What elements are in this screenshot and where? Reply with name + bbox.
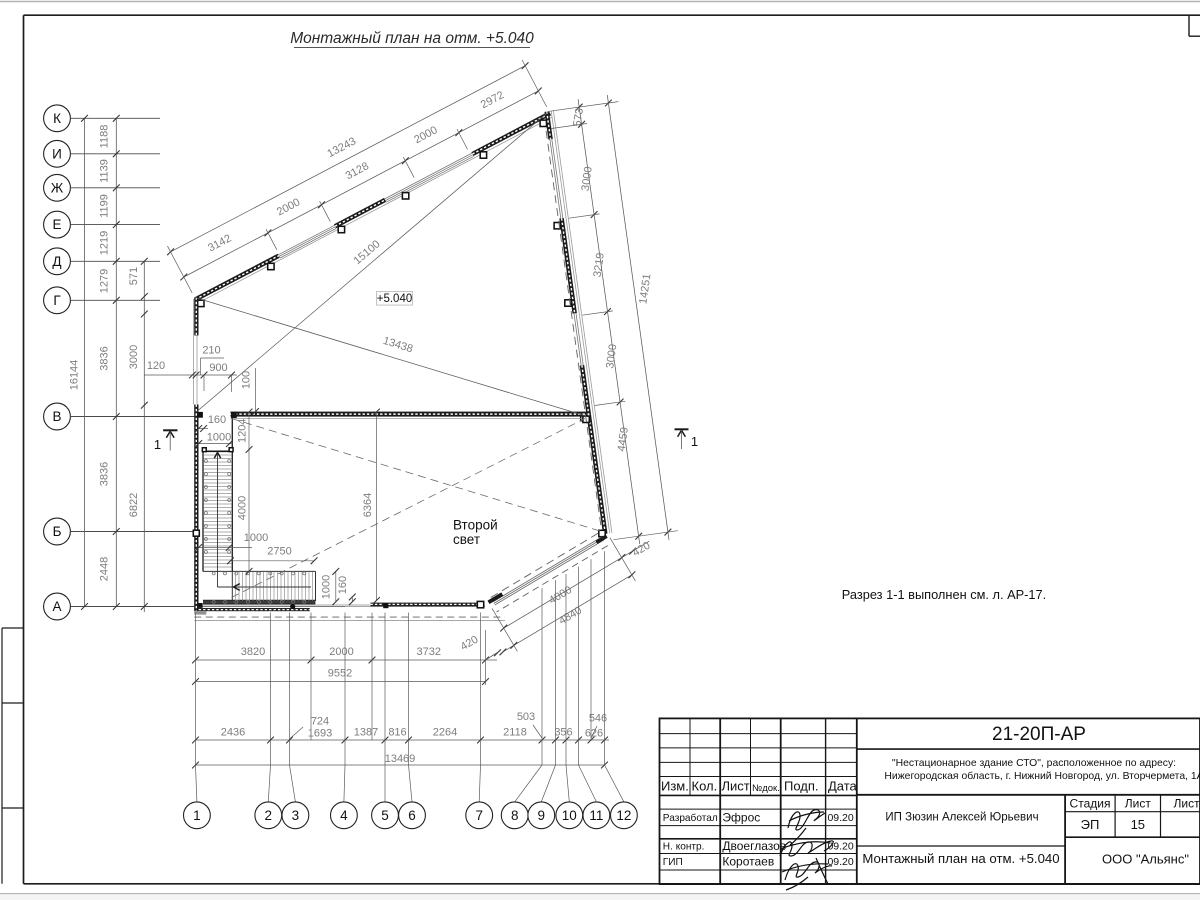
svg-text:1139: 1139 bbox=[99, 159, 111, 183]
svg-text:10: 10 bbox=[562, 808, 577, 823]
svg-text:1693: 1693 bbox=[308, 728, 332, 740]
svg-text:Разрез 1-1 выполнен см. л. АР-: Разрез 1-1 выполнен см. л. АР-17. bbox=[842, 587, 1046, 602]
svg-text:4000: 4000 bbox=[237, 496, 249, 520]
svg-text:2750: 2750 bbox=[267, 546, 291, 558]
svg-text:2436: 2436 bbox=[221, 727, 245, 739]
svg-text:Дата: Дата bbox=[828, 778, 858, 793]
svg-text:2448: 2448 bbox=[99, 557, 111, 581]
svg-text:Второй: Второй bbox=[453, 518, 498, 533]
svg-text:210: 210 bbox=[202, 345, 220, 357]
svg-text:2000: 2000 bbox=[329, 646, 353, 658]
svg-text:Двоеглазов: Двоеглазов bbox=[722, 839, 786, 853]
svg-text:1: 1 bbox=[691, 434, 698, 449]
svg-text:Разработал: Разработал bbox=[663, 812, 718, 824]
svg-text:1: 1 bbox=[154, 437, 161, 452]
svg-text:1188: 1188 bbox=[99, 125, 111, 149]
svg-text:свет: свет bbox=[453, 532, 480, 547]
svg-text:503: 503 bbox=[517, 711, 535, 723]
svg-text:3000: 3000 bbox=[128, 345, 140, 369]
svg-text:09.20: 09.20 bbox=[827, 812, 853, 824]
svg-text:6822: 6822 bbox=[128, 493, 140, 517]
svg-text:1219: 1219 bbox=[99, 231, 111, 255]
svg-text:120: 120 bbox=[147, 360, 165, 372]
svg-text:1204: 1204 bbox=[237, 419, 249, 443]
svg-text:Стадия: Стадия bbox=[1070, 797, 1111, 811]
svg-text:6: 6 bbox=[408, 808, 416, 823]
svg-text:Изм.: Изм. bbox=[661, 778, 689, 793]
svg-text:100: 100 bbox=[241, 371, 253, 389]
svg-text:1279: 1279 bbox=[99, 269, 111, 293]
svg-text:7: 7 bbox=[475, 808, 483, 823]
svg-text:Монтажный план на отм. +5.040: Монтажный план на отм. +5.040 bbox=[290, 30, 534, 47]
svg-text:2264: 2264 bbox=[433, 727, 457, 739]
svg-text:13469: 13469 bbox=[385, 753, 416, 765]
svg-text:"Нестационарное здание СТО", р: "Нестационарное здание СТО", расположенн… bbox=[892, 758, 1176, 769]
svg-text:571: 571 bbox=[128, 267, 140, 285]
svg-text:1000: 1000 bbox=[321, 575, 333, 599]
svg-text:Листов: Листов bbox=[1174, 797, 1200, 811]
svg-text:К: К bbox=[53, 111, 61, 126]
svg-text:16144: 16144 bbox=[69, 360, 81, 391]
svg-text:1: 1 bbox=[193, 808, 201, 823]
svg-text:1000: 1000 bbox=[207, 432, 231, 444]
svg-text:ООО "Альянс": ООО "Альянс" bbox=[1102, 852, 1189, 867]
svg-text:6364: 6364 bbox=[362, 493, 374, 517]
svg-text:3820: 3820 bbox=[241, 646, 265, 658]
svg-text:Нижегородская область, г. Нижн: Нижегородская область, г. Нижний Новгоро… bbox=[884, 770, 1200, 782]
svg-text:3: 3 bbox=[292, 808, 300, 823]
svg-text:ГИП: ГИП bbox=[663, 857, 683, 868]
svg-text:Коротаев: Коротаев bbox=[722, 855, 774, 869]
svg-text:1199: 1199 bbox=[99, 194, 111, 218]
svg-text:626: 626 bbox=[585, 728, 603, 740]
svg-text:+5.040: +5.040 bbox=[377, 293, 413, 305]
svg-text:Е: Е bbox=[52, 217, 61, 232]
svg-text:9552: 9552 bbox=[328, 668, 352, 680]
svg-text:21-20П-АР: 21-20П-АР bbox=[992, 724, 1086, 745]
svg-text:1000: 1000 bbox=[244, 532, 268, 544]
svg-text:160: 160 bbox=[208, 414, 226, 426]
svg-text:Б: Б bbox=[53, 524, 62, 539]
svg-text:900: 900 bbox=[209, 362, 227, 374]
svg-text:356: 356 bbox=[554, 727, 572, 739]
svg-text:09.20: 09.20 bbox=[827, 841, 853, 853]
svg-text:Кол.: Кол. bbox=[692, 778, 718, 793]
svg-text:816: 816 bbox=[388, 727, 406, 739]
svg-text:Эфрос: Эфрос bbox=[722, 810, 760, 824]
svg-text:160: 160 bbox=[337, 576, 349, 594]
svg-text:15: 15 bbox=[1131, 817, 1145, 832]
svg-text:И: И bbox=[52, 146, 62, 161]
svg-text:3836: 3836 bbox=[99, 462, 111, 486]
svg-text:Г: Г bbox=[53, 293, 61, 308]
svg-text:Лист: Лист bbox=[1125, 797, 1152, 811]
svg-text:Ж: Ж bbox=[51, 180, 64, 195]
svg-text:1387: 1387 bbox=[354, 727, 378, 739]
svg-text:724: 724 bbox=[311, 716, 329, 728]
svg-text:№док.: №док. bbox=[752, 783, 780, 794]
svg-text:9: 9 bbox=[538, 808, 546, 823]
svg-text:Н. контр.: Н. контр. bbox=[663, 842, 705, 853]
svg-text:5: 5 bbox=[381, 808, 389, 823]
svg-text:8: 8 bbox=[511, 808, 519, 823]
svg-text:3732: 3732 bbox=[417, 646, 441, 658]
svg-text:12: 12 bbox=[616, 808, 631, 823]
svg-text:Д: Д bbox=[52, 254, 61, 269]
svg-text:Монтажный план на отм. +5.040: Монтажный план на отм. +5.040 bbox=[862, 851, 1059, 866]
svg-text:2118: 2118 bbox=[503, 727, 527, 739]
svg-text:Подп.: Подп. bbox=[784, 778, 819, 793]
svg-text:А: А bbox=[52, 599, 61, 614]
svg-text:4: 4 bbox=[340, 808, 348, 823]
svg-text:ИП Зюзин Алексей Юрьевич: ИП Зюзин Алексей Юрьевич bbox=[885, 812, 1038, 824]
svg-text:Лист: Лист bbox=[722, 778, 750, 793]
svg-text:2: 2 bbox=[265, 808, 273, 823]
svg-text:3836: 3836 bbox=[99, 346, 111, 370]
svg-text:ЭП: ЭП bbox=[1081, 817, 1100, 832]
svg-text:В: В bbox=[52, 409, 61, 424]
svg-text:11: 11 bbox=[589, 808, 603, 823]
